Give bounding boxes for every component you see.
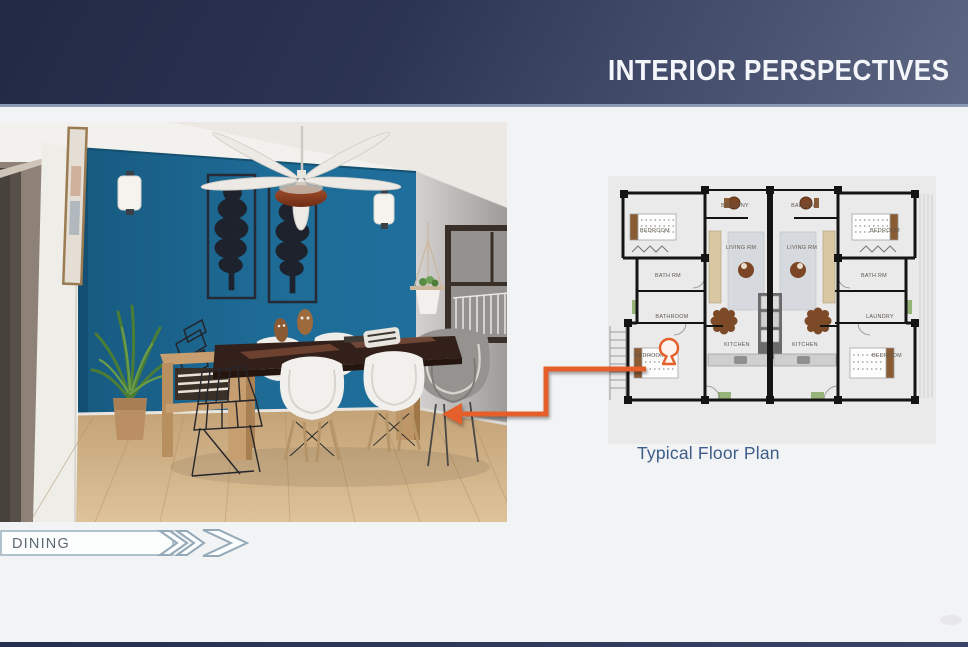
room-label: KITCHEN — [724, 342, 750, 348]
room-label: LAUNDRY — [866, 314, 894, 320]
tag-label: DINING — [12, 536, 70, 552]
dining-tag: DINING — [0, 529, 262, 559]
page-title: INTERIOR PERSPECTIVES — [608, 55, 950, 88]
window — [448, 228, 507, 340]
wall-picture-frame — [63, 128, 86, 285]
room-label: BATH RM — [655, 273, 681, 279]
room-label: BEDROOM — [870, 228, 900, 234]
wall-sconce-left — [118, 171, 141, 215]
background-smudge — [940, 615, 962, 625]
room-label: LIVING RM — [787, 245, 817, 251]
header-band: INTERIOR PERSPECTIVES — [0, 0, 968, 107]
room-label: LIVING RM — [726, 245, 756, 251]
room-label: KITCHEN — [792, 342, 818, 348]
callout-arrow — [440, 355, 665, 433]
room-label: BATHROOM — [655, 314, 688, 320]
room-label: BATH RM — [861, 273, 887, 279]
left-wall-doorway — [0, 128, 87, 522]
room-label: BEDROOM — [640, 228, 670, 234]
footer-strip — [0, 642, 968, 647]
floorplan-caption: Typical Floor Plan — [637, 443, 780, 464]
room-label: BALCONY — [791, 203, 819, 209]
room-label: BALCONY — [721, 203, 749, 209]
room-label: BEDROOM — [872, 353, 902, 359]
plan-party-wall — [767, 188, 773, 402]
wall-sconce-right — [374, 189, 394, 229]
slide: { "header": { "title": "INTERIOR PERSPEC… — [0, 0, 968, 647]
dining-room-photo — [0, 122, 507, 522]
